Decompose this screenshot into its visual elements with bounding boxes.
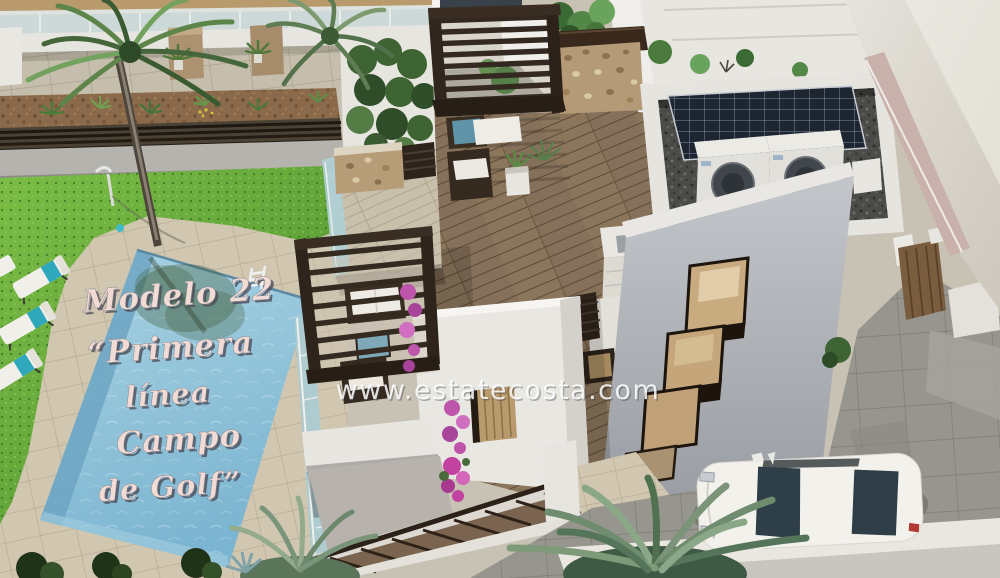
pool-toy — [116, 224, 124, 232]
property-render: Modelo 22 “Primera línea Campo de Golf” … — [0, 0, 1000, 578]
wood-bench — [402, 142, 436, 180]
plant-pot — [174, 60, 183, 70]
white-pillar — [0, 27, 22, 86]
watermark-text: www.estatecosta.com — [336, 375, 661, 406]
pool-label-line: línea — [124, 375, 212, 415]
driveway-bush — [822, 352, 838, 368]
watermark: www.estatecosta.com www.estatecosta.com — [336, 375, 662, 408]
car-rear-window — [848, 467, 901, 538]
car-headlight — [699, 471, 715, 483]
wood-gate-panel — [898, 240, 946, 320]
bbq-stone-counter — [334, 142, 404, 194]
utility-box — [852, 158, 882, 194]
plant-pot — [254, 54, 262, 63]
pergola-entrance — [428, 4, 566, 117]
